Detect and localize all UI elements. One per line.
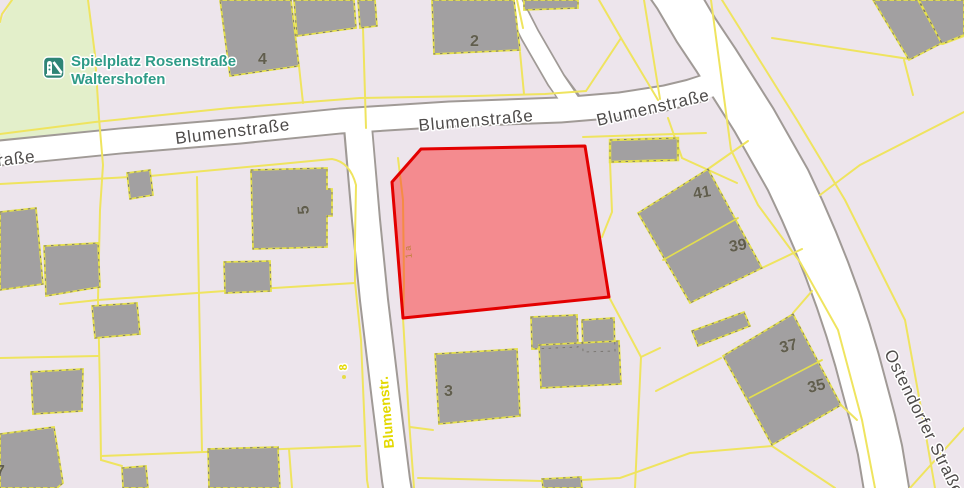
svg-text:41: 41	[692, 183, 713, 203]
svg-text:8: 8	[338, 364, 350, 371]
svg-text:4: 4	[258, 51, 267, 68]
svg-text:5: 5	[295, 205, 313, 215]
svg-text:Spielplatz Rosenstraße: Spielplatz Rosenstraße	[71, 53, 236, 70]
svg-text:2: 2	[470, 33, 479, 50]
svg-text:3: 3	[444, 383, 453, 400]
svg-text:1 a: 1 a	[403, 245, 414, 259]
svg-text:Waltershofen: Waltershofen	[71, 71, 165, 88]
svg-text:7: 7	[0, 463, 5, 480]
svg-text:39: 39	[728, 236, 749, 256]
